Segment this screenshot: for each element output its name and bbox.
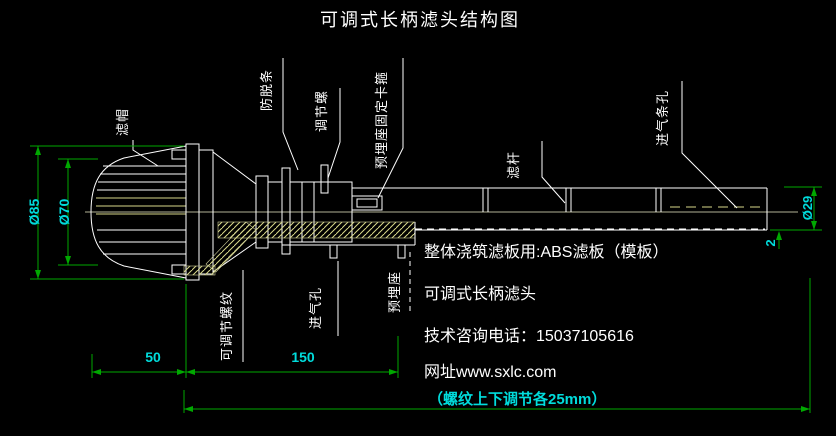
- threaded-sleeve: [184, 222, 415, 275]
- label-embedded-seat: 预埋座: [387, 271, 402, 313]
- label-air-inlet-hole: 进气孔: [308, 287, 323, 329]
- cad-drawing-canvas: 可调式长柄滤头结构图: [0, 0, 836, 436]
- dim-body-length: 150: [291, 349, 315, 365]
- info-phone: 技术咨询电话：15037105616: [424, 327, 634, 345]
- info-filter-plate: 整体浇筑滤板用:ABS滤板（模板）: [424, 243, 668, 261]
- info-website: 网址www.sxlc.com: [424, 363, 556, 381]
- dim-cap-length: 50: [145, 349, 161, 365]
- info-block: 整体浇筑滤板用:ABS滤板（模板） 可调式长柄滤头 技术咨询电话：1503710…: [424, 243, 668, 381]
- dim-rod-diameter: Ø29: [800, 196, 815, 221]
- label-embedded-seat-clamp: 预埋座固定卡箍: [374, 71, 389, 169]
- drawing-title: 可调式长柄滤头结构图: [320, 10, 520, 30]
- dim-wall-thickness: 2: [763, 239, 778, 246]
- info-product-name: 可调式长柄滤头: [424, 285, 536, 303]
- embedded-seat-clamp-part: [352, 196, 382, 210]
- label-filter-cap: 滤帽: [115, 108, 130, 136]
- dimension-wall-thickness: 2: [763, 231, 782, 249]
- structure-drawing: 可调式长柄滤头结构图: [0, 0, 836, 436]
- note-adjustment-range: （螺纹上下调节各25mm）: [428, 390, 606, 408]
- label-anti-slip-strip: 防脱条: [259, 69, 274, 111]
- label-adjusting-screw: 调节螺: [314, 90, 329, 132]
- dimension-rod-diameter: Ø29: [770, 187, 822, 230]
- label-filter-rod: 滤杆: [506, 151, 521, 179]
- label-adjustable-thread: 可调节螺纹: [219, 291, 234, 361]
- dimension-lengths: 50 150: [92, 284, 398, 378]
- dim-cap-inner-diameter: Ø70: [56, 199, 72, 226]
- label-air-inlet-slots: 进气条孔: [655, 90, 670, 146]
- dim-cap-outer-diameter: Ø85: [26, 199, 42, 226]
